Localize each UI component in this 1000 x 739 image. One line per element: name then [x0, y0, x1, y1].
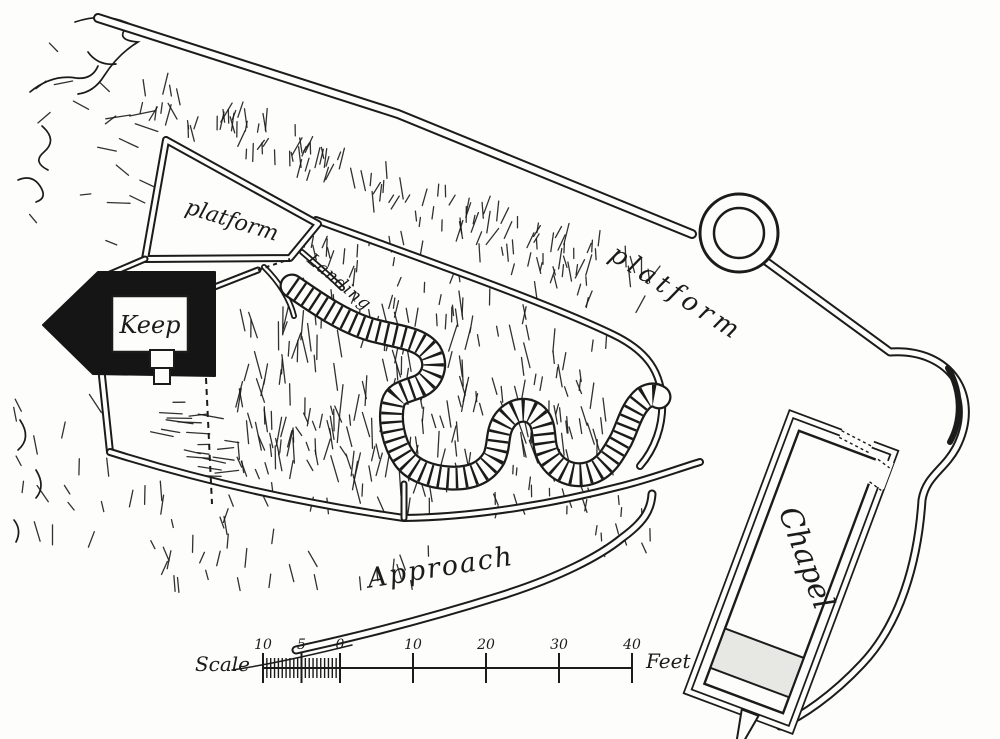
hatch-stroke [447, 401, 451, 427]
hatch-stroke [151, 432, 174, 437]
hatch-stroke [217, 551, 221, 566]
hatch-stroke [296, 427, 302, 435]
hatch-stroke [64, 485, 69, 494]
hatch-stroke [130, 196, 145, 203]
hatch-stroke [315, 450, 318, 464]
hatch-stroke [227, 534, 228, 548]
hatch-stroke [456, 309, 458, 327]
hatch-stroke [305, 137, 312, 153]
hatch-stroke [324, 439, 330, 459]
hatch-stroke [331, 290, 332, 298]
hatch-stroke [476, 232, 481, 245]
hatch-stroke [556, 367, 557, 377]
hatch-stroke [586, 255, 592, 275]
hatch-stroke [306, 442, 309, 450]
hatch-stroke [101, 502, 103, 512]
hatch-stroke [592, 340, 593, 351]
hatch-stroke [314, 575, 317, 590]
hatch-stroke [162, 429, 180, 432]
hatch-stroke [511, 264, 514, 275]
hatch-stroke [249, 312, 258, 337]
hatch-stroke [569, 427, 572, 439]
hatch-stroke [478, 335, 480, 346]
hatch-stroke [535, 282, 537, 299]
hatch-stroke [408, 498, 410, 514]
hatch-stroke [282, 360, 283, 374]
hatch-stroke [526, 325, 529, 340]
rock-squiggle [36, 470, 41, 498]
hatch-stroke [292, 333, 301, 358]
hatch-stroke [419, 217, 420, 226]
hatch-stroke [100, 82, 110, 91]
hatch-stroke [89, 394, 101, 412]
hatch-stroke [540, 377, 542, 391]
hatch-stroke [200, 552, 205, 563]
hatch-stroke [170, 85, 172, 96]
hatch-stroke [383, 181, 384, 193]
hatch-stroke [347, 427, 352, 447]
hatch-stroke [501, 386, 503, 402]
hatch-stroke [487, 211, 490, 233]
chapel-buttress [731, 709, 758, 739]
hatch-stroke [492, 378, 497, 394]
hatch-stroke [595, 249, 596, 260]
hatch-stroke [271, 411, 272, 429]
hatch-stroke [621, 508, 622, 517]
hatch-stroke [537, 223, 539, 233]
hatch-stroke [564, 224, 569, 245]
hatch-stroke [163, 547, 169, 561]
hatch-stroke [592, 240, 593, 252]
scale-bar: 105010203040 Scale Feet [195, 637, 692, 683]
hatch-stroke [270, 444, 271, 456]
scale-bar-title: Scale [195, 652, 250, 676]
hatch-stroke [476, 392, 477, 402]
hatch-stroke [482, 202, 483, 218]
hatch-stroke [452, 426, 456, 442]
hatch-stroke [258, 124, 259, 132]
hatch-stroke [554, 276, 557, 288]
hatch-stroke [465, 328, 471, 350]
hatch-stroke [288, 341, 289, 356]
hatch-stroke [556, 404, 559, 414]
rock-squiggle [30, 66, 98, 92]
courtyard-divider-dashed [206, 378, 212, 504]
hatch-stroke [401, 231, 404, 244]
rock-squiggle [88, 52, 116, 64]
hatch-stroke [326, 239, 327, 256]
rock-squiggle [18, 420, 26, 450]
hatch-stroke [436, 314, 437, 326]
hatch-stroke [422, 419, 423, 433]
hatch-stroke [642, 543, 646, 553]
hatch-stroke [507, 244, 509, 261]
hatch-stroke [163, 73, 168, 94]
hatch-stroke [558, 365, 562, 387]
winding-stair [292, 286, 659, 478]
hatch-stroke [568, 262, 572, 281]
hatch-stroke [320, 414, 323, 427]
scale-tick-label: 40 [622, 637, 641, 653]
hatch-stroke [473, 394, 477, 412]
hatch-stroke [151, 541, 155, 549]
hatch-stroke [255, 470, 259, 479]
hatch-stroke [586, 277, 587, 286]
hatch-stroke [140, 103, 143, 114]
hatch-stroke [327, 421, 330, 434]
hatch-stroke [382, 304, 387, 322]
hatch-stroke [415, 211, 416, 221]
hatch-stroke [579, 419, 581, 434]
hatch-stroke [340, 385, 343, 414]
hatch-stroke [160, 413, 183, 414]
keep-building: Keep [43, 272, 215, 384]
hatch-stroke [537, 258, 541, 274]
hatch-stroke [22, 481, 23, 492]
hatch-stroke [479, 244, 480, 262]
hatch-stroke [406, 308, 409, 322]
round-tower [700, 194, 778, 272]
scale-tick-label: 20 [476, 637, 495, 653]
hatch-stroke [373, 183, 380, 194]
hatch-stroke [238, 442, 240, 459]
hatch-stroke [280, 440, 281, 453]
hatch-stroke [480, 403, 483, 415]
hatch-stroke [238, 102, 243, 117]
hatch-stroke [302, 336, 308, 362]
hatch-stroke [225, 441, 239, 443]
hatch-stroke [361, 171, 365, 191]
hatch-stroke [290, 384, 291, 405]
hatch-stroke [601, 533, 602, 541]
hatch-stroke [177, 89, 181, 105]
hatch-stroke [232, 111, 235, 120]
hatch-stroke [107, 203, 130, 204]
hatch-stroke [172, 520, 174, 528]
hatch-stroke [160, 481, 162, 501]
hatch-stroke [143, 80, 145, 96]
hatch-stroke [198, 414, 223, 419]
hatch-stroke [439, 295, 441, 305]
hatch-stroke [161, 103, 162, 114]
keep-turret-upper [150, 350, 174, 368]
hatch-stroke [603, 398, 606, 421]
terrace-keep-link-east [212, 270, 258, 288]
scale-tick-label: 10 [254, 637, 272, 653]
hatch-stroke [362, 484, 363, 496]
hatch-stroke [307, 170, 310, 180]
hatch-stroke [304, 413, 309, 423]
hatch-stroke [484, 196, 491, 214]
hatch-stroke [563, 353, 566, 370]
hatch-stroke [370, 173, 371, 185]
hatch-stroke [601, 418, 603, 434]
hatch-stroke [562, 433, 565, 455]
scale-tick-label: 10 [404, 637, 422, 653]
hatch-stroke [393, 258, 394, 266]
hatch-stroke [16, 456, 21, 465]
hatch-stroke [34, 522, 40, 541]
hatch-stroke [457, 422, 459, 441]
plan-figure: Keep Chapel platform platform Landing Ap… [0, 0, 1000, 739]
chapel-building: Chapel [678, 407, 900, 739]
hatch-stroke [380, 185, 382, 201]
hatch-stroke [343, 249, 344, 264]
hatch-stroke [220, 112, 224, 129]
hatch-stroke [528, 253, 531, 266]
hatch-stroke [559, 249, 562, 269]
hatch-stroke [553, 329, 555, 352]
hatch-stroke [308, 551, 317, 566]
hatch-stroke [178, 578, 179, 593]
hatch-stroke [328, 248, 331, 258]
hatch-stroke [194, 117, 198, 129]
hatch-stroke [432, 207, 434, 219]
courtyard-west-wall [102, 376, 110, 452]
hatch-stroke [398, 278, 402, 286]
hatch-stroke [448, 352, 452, 368]
hatch-stroke [187, 432, 210, 434]
hatch-stroke [385, 454, 389, 477]
hatch-stroke [606, 335, 607, 349]
hatch-stroke [577, 284, 580, 295]
hatch-stroke [135, 124, 158, 132]
hatch-stroke [106, 115, 131, 119]
round-tower-inner [714, 208, 764, 258]
hatch-stroke [365, 376, 367, 406]
hatch-stroke [527, 233, 534, 248]
hatch-stroke [502, 247, 504, 255]
hatch-stroke [313, 421, 316, 430]
hatch-stroke [596, 526, 597, 535]
hatch-stroke [524, 343, 530, 368]
hatch-stroke [440, 416, 444, 427]
hatch-stroke [383, 359, 388, 381]
hatch-stroke [512, 240, 513, 254]
hatch-stroke [445, 314, 446, 329]
hatch-stroke [174, 576, 175, 592]
hatch-stroke [255, 352, 262, 379]
hatch-stroke [458, 396, 461, 407]
hatch-stroke [497, 201, 499, 221]
hatch-stroke [432, 414, 436, 427]
hatch-stroke [522, 358, 524, 376]
hatch-stroke [279, 370, 281, 385]
rock-squiggle [39, 126, 51, 170]
hatch-stroke [289, 565, 293, 582]
hatch-stroke [308, 324, 312, 352]
hatch-stroke [509, 325, 515, 350]
hatch-stroke [389, 195, 394, 202]
hatch-stroke [360, 577, 361, 590]
hatch-stroke [88, 532, 94, 547]
hatch-stroke [248, 413, 252, 428]
scale-tick-label: 30 [550, 637, 568, 653]
hatch-stroke [529, 477, 531, 490]
hatch-stroke [213, 457, 234, 460]
hatch-stroke [616, 524, 619, 534]
hatch-stroke [362, 413, 369, 437]
hatch-stroke [130, 111, 155, 116]
hatch-stroke [331, 456, 339, 482]
hatch-stroke [501, 208, 509, 224]
hatch-stroke [120, 139, 139, 148]
hatch-stroke [338, 152, 341, 160]
hatch-stroke [80, 194, 90, 195]
hatch-stroke [564, 243, 565, 253]
hatch-stroke [290, 461, 293, 479]
hatch-stroke [307, 460, 313, 470]
hatch-stroke [265, 463, 268, 474]
rock-squiggle [14, 520, 19, 542]
hatch-stroke [586, 291, 592, 307]
hatch-stroke [536, 239, 537, 250]
hatch-stroke [357, 245, 358, 257]
hatch-stroke [400, 178, 403, 199]
hatch-stroke [349, 266, 354, 277]
hatch-stroke [315, 148, 320, 168]
hatch-stroke [62, 422, 65, 438]
hatch-stroke [314, 355, 315, 371]
hatch-stroke [393, 298, 394, 308]
hatch-stroke [369, 466, 372, 481]
hatch-stroke [73, 101, 88, 109]
hatch-stroke [244, 364, 249, 380]
hatch-stroke [223, 509, 228, 523]
hatch-stroke [275, 150, 276, 165]
hatch-stroke [263, 139, 268, 147]
hatch-stroke [378, 497, 385, 512]
hatch-stroke [257, 379, 265, 402]
hatch-stroke [560, 408, 561, 422]
hatch-stroke [453, 305, 454, 315]
hatch-stroke [449, 325, 457, 351]
hatch-stroke [305, 158, 309, 171]
hatch-stroke [598, 231, 600, 246]
hatch-stroke [98, 147, 117, 151]
scale-bar-unit: Feet [645, 649, 691, 673]
scale-tick-label: 0 [336, 637, 345, 653]
hatch-stroke [258, 140, 265, 149]
hatch-stroke [351, 451, 354, 476]
hatch-stroke [107, 458, 109, 476]
hatch-stroke [357, 261, 358, 272]
hatch-stroke [339, 148, 344, 169]
hatch-stroke [331, 406, 333, 414]
hatch-stroke [618, 496, 619, 505]
hatch-stroke [247, 421, 249, 444]
hatch-stroke [279, 453, 282, 470]
hatch-stroke [514, 494, 517, 503]
hatch-stroke [422, 189, 427, 206]
scale-tick-label: 5 [297, 637, 306, 653]
hatch-stroke [438, 431, 439, 457]
hatch-stroke [264, 364, 268, 384]
hatch-stroke [553, 351, 554, 363]
hatch-stroke [540, 263, 542, 271]
hatch-stroke [297, 340, 298, 361]
hatch-stroke [218, 448, 234, 450]
hatch-stroke [238, 131, 245, 147]
hatch-stroke [301, 311, 304, 340]
hatch-stroke [354, 395, 359, 421]
castle-plan-drawing: Keep Chapel platform platform Landing Ap… [0, 0, 1000, 739]
hatch-stroke [30, 214, 37, 222]
hatch-stroke [206, 570, 209, 579]
hatch-stroke [272, 529, 274, 543]
hatch-stroke [229, 495, 233, 506]
hatch-stroke [106, 241, 117, 245]
hatch-stroke [587, 243, 591, 252]
hatch-stroke [372, 191, 374, 212]
hatch-stroke [105, 116, 115, 124]
hatch-stroke [246, 149, 247, 159]
hatch-stroke [588, 423, 595, 444]
hatch-stroke [376, 444, 379, 459]
hatch-stroke [515, 386, 518, 398]
hatch-stroke [455, 441, 457, 456]
hatch-stroke [551, 233, 554, 252]
hatch-stroke [415, 308, 418, 326]
hatch-stroke [590, 383, 594, 408]
hatch-stroke [215, 470, 239, 473]
hatch-stroke [395, 301, 399, 318]
hatch-stroke [562, 265, 563, 277]
hatch-stroke [372, 418, 373, 448]
hatch-stroke [565, 387, 568, 397]
hatch-stroke [340, 447, 347, 457]
hatch-stroke [54, 81, 72, 85]
keep-label: Keep [118, 311, 180, 339]
hatch-stroke [351, 168, 355, 188]
hatch-stroke [497, 326, 499, 336]
hatch-stroke [449, 195, 455, 205]
hatch-stroke [15, 399, 21, 411]
hatch-stroke [555, 227, 561, 238]
hatch-stroke [389, 295, 393, 308]
hatch-stroke [334, 364, 338, 391]
hatch-stroke [116, 165, 128, 175]
hatch-stroke [516, 468, 517, 475]
hatch-stroke [14, 407, 17, 421]
hatch-stroke [486, 229, 498, 245]
hatch-stroke [68, 502, 74, 510]
hatch-stroke [326, 157, 329, 166]
hatch-stroke [593, 429, 599, 450]
hatch-stroke [34, 436, 38, 454]
hatch-stroke [504, 222, 512, 239]
hatch-stroke [49, 43, 57, 51]
hatch-stroke [636, 296, 645, 313]
hatch-stroke [581, 407, 587, 426]
hatch-stroke [438, 184, 439, 196]
hatch-stroke [287, 428, 293, 456]
hatch-stroke [162, 561, 168, 574]
hatch-stroke [245, 549, 247, 568]
hatch-stroke [129, 490, 133, 507]
hatch-stroke [253, 144, 254, 162]
hatch-stroke [269, 574, 271, 587]
hatch-stroke [240, 310, 245, 331]
keep-turret-lower [154, 368, 170, 384]
hatch-stroke [349, 415, 350, 425]
approach-label: Approach [362, 541, 516, 595]
hatch-stroke [386, 162, 387, 179]
hatch-stroke [405, 195, 409, 202]
hatch-stroke [441, 449, 446, 467]
terrace-keep-link-east-core [212, 270, 258, 288]
hatch-stroke [579, 379, 580, 390]
